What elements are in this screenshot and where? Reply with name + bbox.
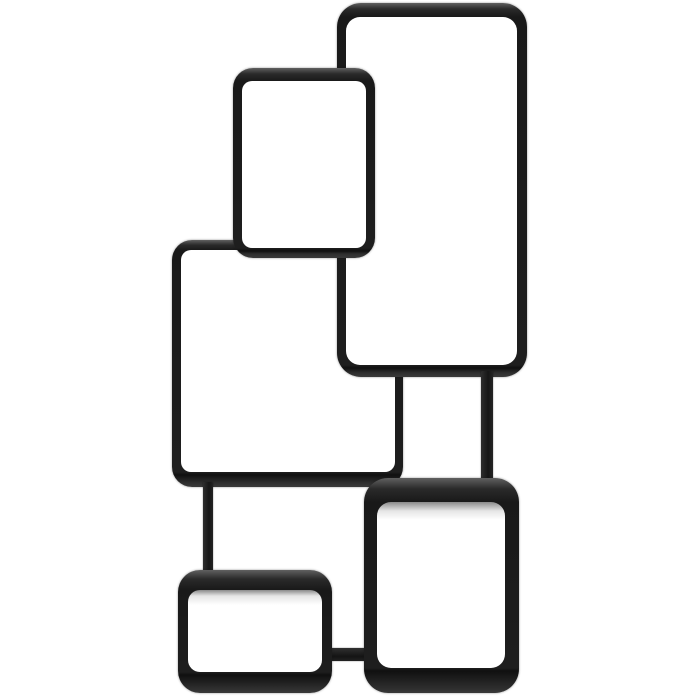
connector-square-to-small-shelf bbox=[203, 482, 213, 574]
cube-shelf-small-bottom-left bbox=[178, 570, 332, 693]
cube-shelf-small-bottom-left-opening bbox=[188, 590, 322, 672]
connector-small-to-bottom-right-shelf bbox=[330, 648, 366, 661]
connector-tall-to-bottom-right-shelf bbox=[481, 371, 493, 482]
cube-shelf-portrait-top-center bbox=[233, 68, 375, 258]
cube-shelf-portrait-top-center-opening bbox=[242, 81, 366, 248]
shelf-product-photo: Black interlocking cube wall shelf on wh… bbox=[0, 0, 700, 700]
cube-shelf-rect-bottom-right bbox=[364, 478, 519, 693]
cube-shelf-rect-bottom-right-opening bbox=[377, 502, 505, 668]
